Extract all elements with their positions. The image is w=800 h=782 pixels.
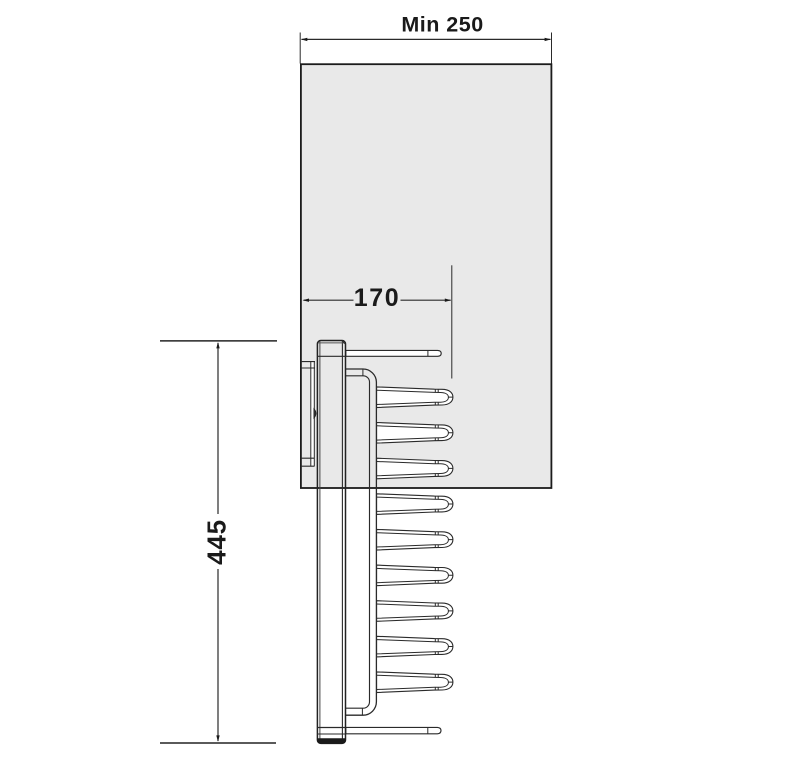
svg-text:445: 445: [201, 519, 231, 565]
svg-text:170: 170: [354, 284, 401, 312]
svg-text:Min 250: Min 250: [401, 13, 483, 37]
